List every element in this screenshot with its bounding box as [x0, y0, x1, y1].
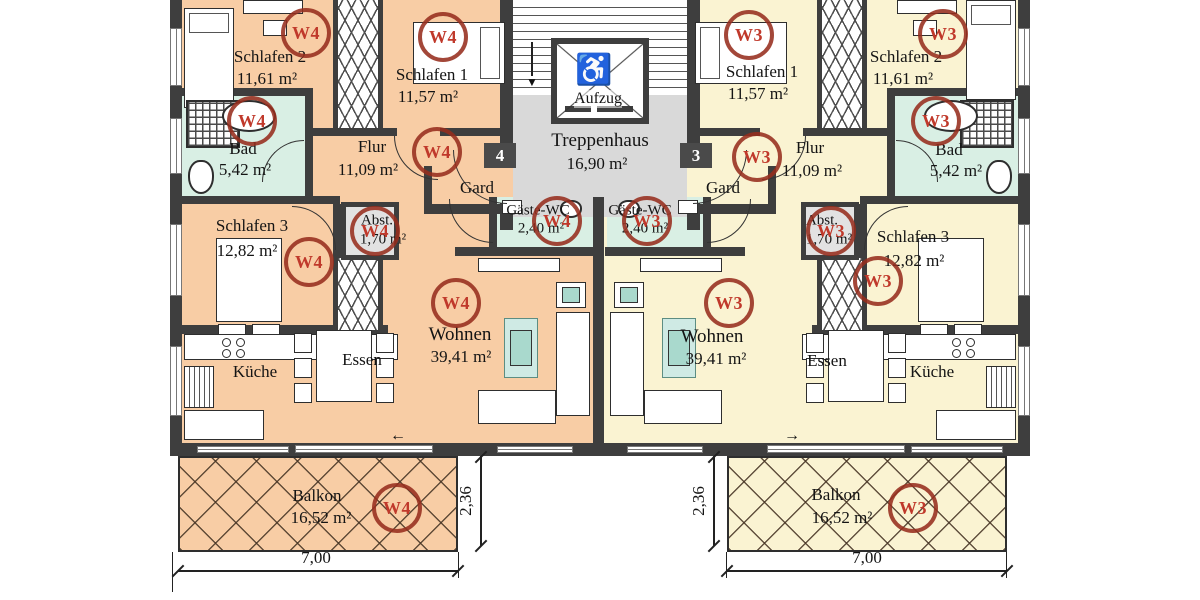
room-label: Flur: [358, 137, 386, 157]
room-label: Schlafen 3: [877, 227, 949, 247]
room-label: Küche: [233, 362, 277, 382]
room-area: 12,82 m²: [217, 241, 278, 261]
room-area: 5,42 m²: [930, 161, 982, 181]
room-area: 11,61 m²: [873, 69, 933, 89]
dimension-label: 2,36: [456, 486, 476, 516]
wall: [803, 128, 887, 136]
room-area: 11,57 m²: [728, 84, 788, 104]
unit-number-badge-w3: 3: [680, 143, 712, 168]
shaft-w3-top: [817, 0, 867, 128]
stove-burner: [236, 349, 245, 358]
toilet: [986, 160, 1012, 194]
dimension-ext: [726, 552, 727, 578]
unit-marker-w3: W3: [724, 10, 774, 60]
room-label: Schlafen 1: [396, 65, 468, 85]
side-table: [556, 282, 586, 308]
unit-marker-w4: W4: [431, 278, 481, 328]
stove-burner: [236, 338, 245, 347]
counter: [936, 410, 1016, 440]
dimension-line: [480, 456, 482, 546]
window: [1018, 28, 1030, 86]
sideboard: [640, 258, 722, 272]
room-area: 39,41 m²: [431, 347, 492, 367]
wheelchair-icon: ♿: [575, 53, 612, 88]
dimension-line: [178, 570, 458, 572]
window: [170, 118, 182, 174]
unit-marker-w4: W4: [532, 196, 582, 246]
unit-marker-w3: W3: [732, 132, 782, 182]
bed: [184, 8, 234, 108]
elevator-label: Aufzug: [574, 90, 622, 108]
wall: [305, 96, 313, 204]
unit-marker-w4: W4: [418, 12, 468, 62]
room-area-treppenhaus: 16,90 m²: [567, 154, 628, 174]
unit-marker-w3: W3: [888, 483, 938, 533]
window: [911, 446, 1003, 453]
stove-burner: [966, 338, 975, 347]
chair: [294, 333, 312, 353]
window: [170, 224, 182, 296]
window: [627, 446, 703, 453]
sofa: [644, 390, 722, 424]
wall: [182, 196, 340, 204]
stove-burner: [952, 338, 961, 347]
toilet: [188, 160, 214, 194]
chair: [888, 383, 906, 403]
side-table: [614, 282, 644, 308]
sofa: [610, 312, 644, 416]
bed: [966, 0, 1016, 100]
window: [170, 346, 182, 416]
room-area: 5,42 m²: [219, 160, 271, 180]
window: [170, 28, 182, 86]
door-slide-arrow-w3: →: [784, 427, 800, 445]
unit-marker-w3: W3: [918, 9, 968, 59]
unit-marker-w3: W3: [853, 256, 903, 306]
shaft-w4-top: [333, 0, 383, 128]
room-label: Essen: [342, 350, 382, 370]
unit-marker-w3: W3: [806, 206, 856, 256]
stove-burner: [222, 349, 231, 358]
dimension-label: 7,00: [852, 548, 882, 568]
balcony-w3: [727, 456, 1007, 552]
chair: [294, 383, 312, 403]
window: [1018, 224, 1030, 296]
wall: [605, 247, 745, 256]
chair: [294, 358, 312, 378]
unit-marker-w4: W4: [372, 483, 422, 533]
unit-marker-w4: W4: [284, 237, 334, 287]
wall: [860, 196, 1018, 204]
room-label: Küche: [910, 362, 954, 382]
dimension-ext: [172, 552, 173, 592]
chair: [376, 383, 394, 403]
balcony-door-w4: [295, 445, 433, 453]
window: [197, 446, 289, 453]
dimension-ext: [1006, 552, 1007, 578]
room-label: Essen: [807, 351, 847, 371]
wall: [887, 96, 895, 204]
room-area: 16,52 m²: [812, 508, 873, 528]
chair: [806, 333, 824, 353]
dimension-ext: [458, 552, 459, 578]
sofa: [556, 312, 590, 416]
room-label: Wohnen: [681, 326, 744, 348]
room-label: Gard: [460, 178, 494, 198]
room-label-treppenhaus: Treppenhaus: [551, 130, 648, 152]
stair-arrow-line: [531, 42, 533, 76]
window: [1018, 346, 1030, 416]
balcony-door-w3: [767, 445, 905, 453]
chair: [806, 383, 824, 403]
room-label: Flur: [796, 138, 824, 158]
room-area: 11,09 m²: [782, 161, 842, 181]
sofa: [478, 390, 556, 424]
sideboard: [478, 258, 560, 272]
room-area: 39,41 m²: [686, 349, 747, 369]
stove-burner: [952, 349, 961, 358]
shaft-w4-mid: [333, 258, 383, 330]
fridge: [184, 366, 214, 408]
coffee-table: [510, 330, 532, 366]
room-label: Balkon: [292, 486, 341, 506]
room-area: 11,57 m²: [398, 87, 458, 107]
fridge: [986, 366, 1016, 408]
stove-burner: [966, 349, 975, 358]
dimension-line: [713, 456, 715, 546]
dimension-label: 7,00: [301, 548, 331, 568]
room-label: Schlafen 3: [216, 216, 288, 236]
room-label: Schlafen 1: [726, 62, 798, 82]
room-area: 11,61 m²: [237, 69, 297, 89]
chair: [888, 333, 906, 353]
unit-marker-w4: W4: [281, 8, 331, 58]
window: [497, 446, 573, 453]
unit-marker-w3: W3: [704, 278, 754, 328]
unit-marker-w3: W3: [622, 196, 672, 246]
floor-plan: ▼ ♿ Aufzug: [0, 0, 1200, 600]
wall: [455, 247, 595, 256]
chair: [888, 358, 906, 378]
stove-burner: [222, 338, 231, 347]
room-area: 11,09 m²: [338, 160, 398, 180]
room-area: 16,52 m²: [291, 508, 352, 528]
stair-direction-arrow: ▼: [526, 75, 538, 89]
unit-marker-w3: W3: [911, 96, 961, 146]
unit-number-badge-w4: 4: [484, 143, 516, 168]
party-wall: [593, 197, 604, 443]
unit-marker-w4: W4: [350, 206, 400, 256]
door-slide-arrow-w4: ←: [390, 427, 406, 445]
room-label: Balkon: [811, 485, 860, 505]
dimension-label: 2,36: [689, 486, 709, 516]
room-label: Gard: [706, 178, 740, 198]
counter: [184, 410, 264, 440]
wall: [313, 128, 397, 136]
window: [1018, 118, 1030, 174]
unit-marker-w4: W4: [412, 127, 462, 177]
unit-marker-w4: W4: [227, 96, 277, 146]
dimension-line: [727, 570, 1007, 572]
